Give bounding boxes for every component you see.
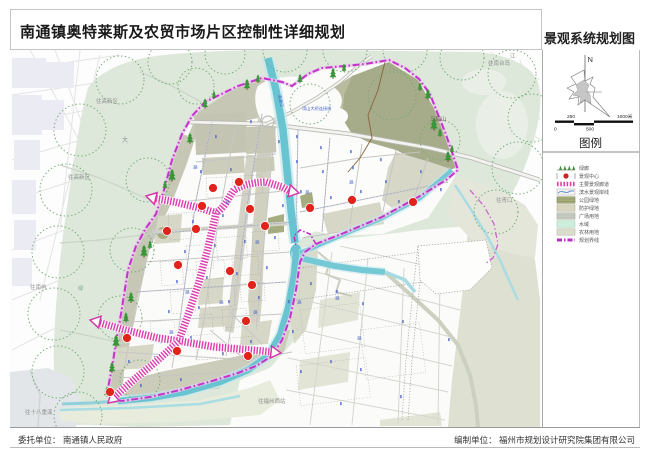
svg-text:往高新区: 往高新区 (96, 97, 119, 105)
svg-text:往南台岛: 往南台岛 (488, 59, 511, 67)
svg-text:往高新区: 往高新区 (68, 173, 91, 181)
svg-text:滨水景观岸线: 滨水景观岸线 (579, 189, 609, 196)
svg-text:马鞍山: 马鞍山 (430, 115, 447, 123)
svg-text:农林用地: 农林用地 (579, 229, 599, 236)
svg-text:广场用地: 广场用地 (579, 213, 599, 220)
svg-text:图例: 图例 (579, 136, 602, 150)
svg-text:主要景观廊道: 主要景观廊道 (579, 181, 609, 188)
svg-text:500: 500 (586, 127, 594, 133)
svg-text:公园绿地: 公园绿地 (579, 197, 599, 204)
svg-text:绿: 绿 (78, 285, 83, 292)
svg-text:往青口: 往青口 (496, 196, 513, 204)
svg-text:0: 0 (554, 127, 557, 133)
svg-text:往福州西站: 往福州西站 (258, 397, 286, 405)
svg-text:景观中心: 景观中心 (579, 173, 599, 180)
svg-text:江: 江 (510, 53, 516, 60)
svg-text:防护绿地: 防护绿地 (579, 205, 599, 212)
svg-text:大: 大 (122, 136, 128, 144)
svg-text:绿廊: 绿廊 (579, 165, 589, 172)
svg-text:往南屿: 往南屿 (30, 283, 47, 291)
svg-text:250: 250 (567, 114, 575, 120)
svg-text:水域: 水域 (579, 221, 589, 228)
svg-text:N: N (588, 55, 593, 64)
svg-text:规划界线: 规划界线 (579, 237, 599, 244)
svg-text:往十八重溪: 往十八重溪 (25, 408, 53, 416)
svg-text:1000米: 1000米 (617, 113, 633, 120)
svg-text:湾山大桥连接线: 湾山大桥连接线 (302, 105, 332, 112)
